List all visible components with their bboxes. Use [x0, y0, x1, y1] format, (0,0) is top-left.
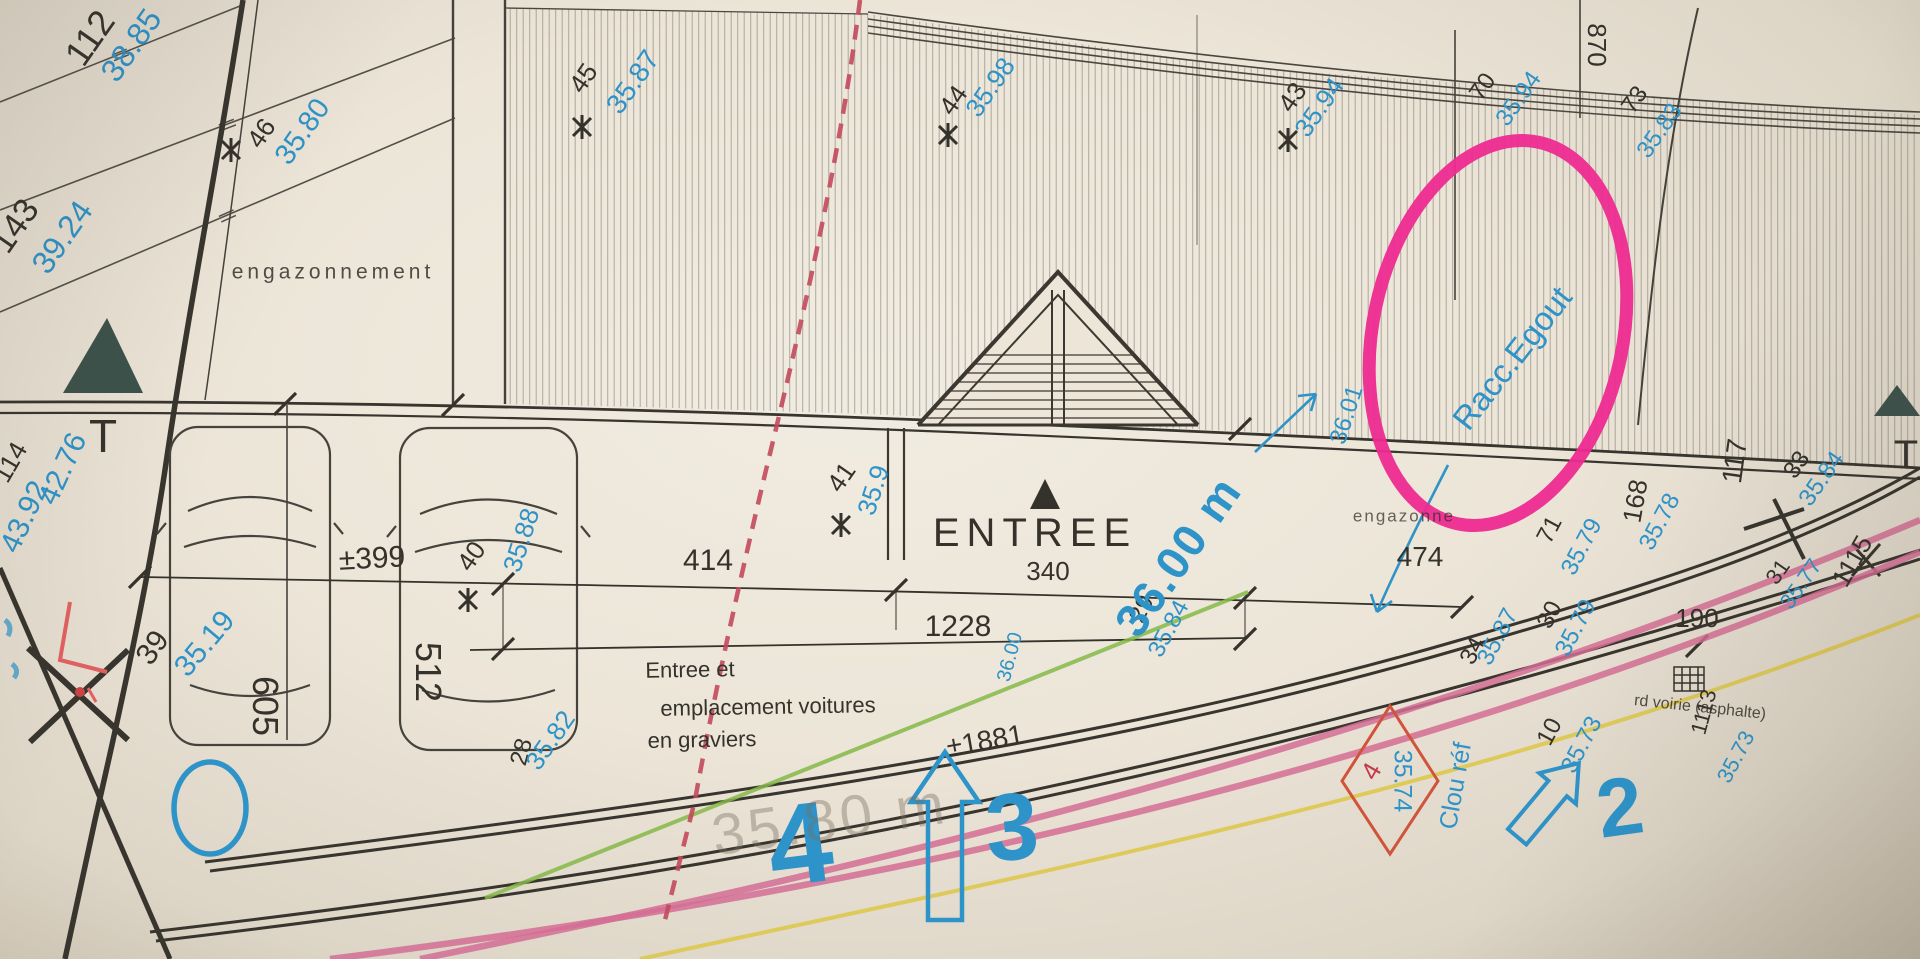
site-plan-photo: 11238.8514339.244635.804535.874435.98433… — [0, 0, 1920, 959]
dim-474: 474 — [1397, 543, 1444, 571]
dim-399: ±399 — [338, 542, 406, 575]
entree-triangle-icon — [1030, 479, 1060, 509]
letter-T-right: T — [1894, 435, 1918, 475]
note-graviers-line3: en graviers — [647, 728, 756, 752]
dim-340: 340 — [1026, 558, 1069, 584]
dim-1228: 1228 — [925, 612, 992, 642]
parking-512: 512 — [410, 642, 446, 702]
note-graviers-line1: Entree et — [645, 658, 735, 682]
label-entree: ENTREE — [933, 513, 1137, 553]
handwriting-O-icon — [174, 762, 246, 854]
handwriting-3: 3 — [982, 779, 1041, 877]
distance-870: 870 — [1584, 23, 1610, 66]
area-engazonnement-right: engazonne — [1353, 508, 1455, 525]
dimension-lines — [140, 577, 1462, 650]
letter-T-left: T — [89, 413, 117, 459]
area-engazonnement: engazonnement — [232, 262, 435, 283]
dim-117: 117 — [1718, 437, 1752, 485]
parking-605: 605 — [247, 676, 283, 736]
elevation-clou: 35.74 — [1390, 750, 1415, 813]
dim-190: 190 — [1675, 605, 1718, 631]
dim-414: 414 — [683, 546, 733, 576]
note-graviers-line2: emplacement voitures — [660, 694, 876, 720]
